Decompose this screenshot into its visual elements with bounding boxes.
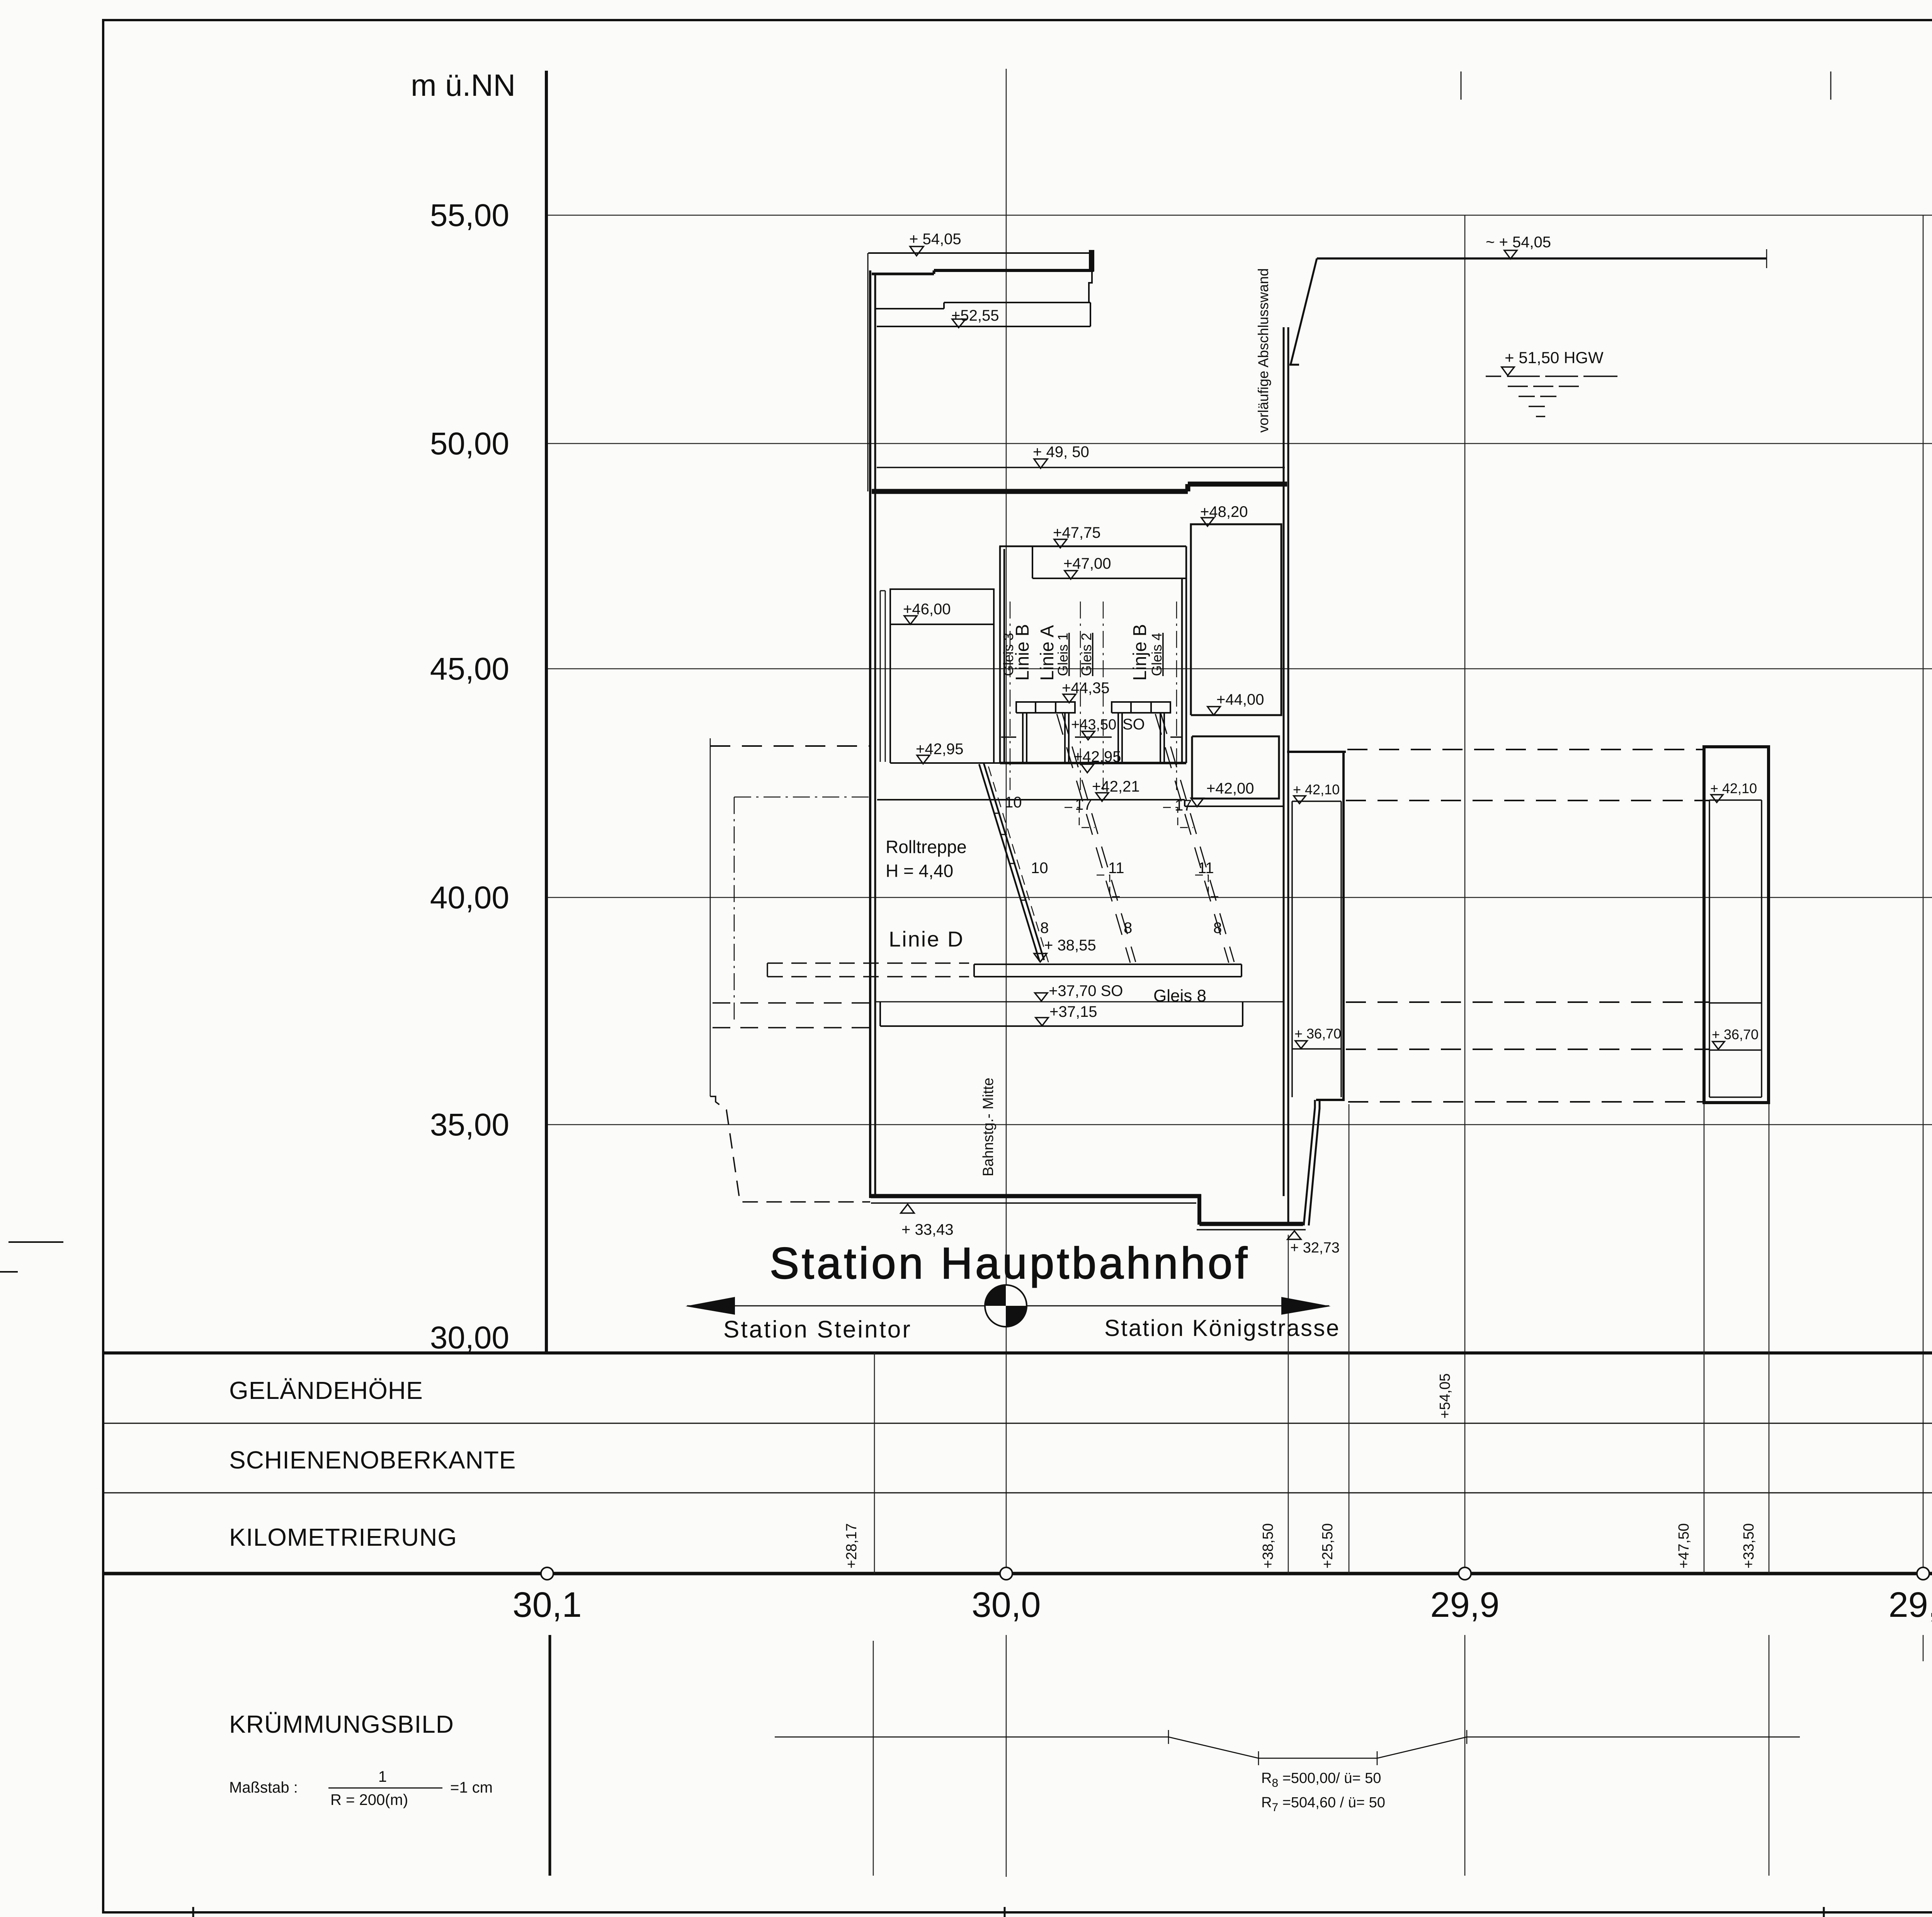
- svg-text:30,00: 30,00: [430, 1320, 509, 1355]
- svg-text:10: 10: [1005, 794, 1022, 811]
- svg-text:+44,00: +44,00: [1216, 691, 1264, 708]
- svg-text:Gleis 2: Gleis 2: [1078, 633, 1094, 676]
- svg-text:+ 36,70: + 36,70: [1712, 1026, 1759, 1042]
- svg-text:+ 36,70: + 36,70: [1294, 1026, 1341, 1042]
- svg-text:+ 38,55: + 38,55: [1044, 937, 1096, 954]
- svg-text:35,00: 35,00: [430, 1107, 509, 1142]
- svg-text:Gleis 1: Gleis 1: [1055, 633, 1071, 676]
- svg-text:Linie B: Linie B: [1012, 624, 1033, 681]
- svg-text:+ 42,10: + 42,10: [1710, 780, 1757, 796]
- svg-text:Bahnstg.- Mitte: Bahnstg.- Mitte: [980, 1077, 997, 1176]
- svg-text:45,00: 45,00: [430, 651, 509, 687]
- svg-text:50,00: 50,00: [430, 426, 509, 461]
- svg-text:Station Hauptbahnhof: Station Hauptbahnhof: [770, 1239, 1250, 1288]
- svg-text:~ + 54,05: ~ + 54,05: [1486, 234, 1551, 251]
- svg-text:+ 49, 50: + 49, 50: [1033, 444, 1089, 461]
- svg-text:+54,05: +54,05: [1437, 1373, 1453, 1419]
- svg-text:Linie D: Linie D: [889, 927, 964, 951]
- svg-text:30,1: 30,1: [512, 1585, 582, 1625]
- svg-text:H = 4,40: H = 4,40: [886, 861, 953, 881]
- svg-text:40,00: 40,00: [430, 880, 509, 915]
- svg-text:KRÜMMUNGSBILD: KRÜMMUNGSBILD: [229, 1710, 454, 1738]
- svg-text:30,0: 30,0: [971, 1585, 1041, 1625]
- svg-text:+33,50: +33,50: [1741, 1523, 1757, 1569]
- svg-text:GELÄNDEHÖHE: GELÄNDEHÖHE: [229, 1377, 423, 1404]
- svg-text:+28,17: +28,17: [844, 1523, 860, 1569]
- svg-text:17: 17: [1075, 796, 1092, 813]
- svg-text:Station Königstrasse: Station Königstrasse: [1104, 1315, 1340, 1341]
- svg-text:29,9: 29,9: [1430, 1585, 1499, 1625]
- svg-text:Rolltreppe: Rolltreppe: [886, 837, 967, 857]
- svg-text:=1 cm: =1 cm: [450, 1779, 493, 1796]
- svg-text:Maßstab :: Maßstab :: [229, 1779, 298, 1796]
- svg-text:Linje B: Linje B: [1130, 624, 1150, 681]
- svg-text:55,00: 55,00: [430, 198, 509, 233]
- svg-text:+52,55: +52,55: [951, 307, 999, 324]
- svg-text:Gleis 8: Gleis 8: [1153, 986, 1206, 1005]
- svg-text:+42,95: +42,95: [1073, 748, 1121, 765]
- svg-text:+37,15: +37,15: [1049, 1003, 1097, 1020]
- svg-text:Station Steintor: Station Steintor: [723, 1316, 912, 1343]
- svg-text:+47,00: +47,00: [1063, 555, 1111, 572]
- svg-text:SCHIENENOBERKANTE: SCHIENENOBERKANTE: [229, 1446, 516, 1474]
- svg-text:+ 32,73: + 32,73: [1290, 1240, 1340, 1256]
- svg-text:m ü.NN: m ü.NN: [411, 68, 515, 102]
- svg-text:11: 11: [1108, 860, 1124, 877]
- svg-text:+ 54,05: + 54,05: [909, 231, 961, 248]
- svg-text:29,8: 29,8: [1888, 1585, 1932, 1625]
- svg-text:vorläufige Abschlusswand: vorläufige Abschlusswand: [1255, 268, 1271, 433]
- svg-text:+42,00: +42,00: [1206, 780, 1254, 797]
- svg-text:+43,50: +43,50: [1071, 717, 1116, 733]
- svg-text:SO: SO: [1122, 716, 1145, 733]
- svg-text:+ 42,10: + 42,10: [1293, 782, 1340, 797]
- svg-text:8: 8: [1124, 919, 1132, 936]
- svg-text:8: 8: [1213, 919, 1222, 936]
- svg-text:+ 33,43: + 33,43: [901, 1221, 954, 1238]
- svg-text:R = 200(m): R = 200(m): [330, 1791, 408, 1808]
- svg-text:8: 8: [1040, 919, 1049, 936]
- svg-text:11: 11: [1198, 860, 1214, 877]
- svg-text:+38,50: +38,50: [1260, 1523, 1276, 1569]
- svg-text:+25,50: +25,50: [1320, 1523, 1336, 1569]
- svg-text:10: 10: [1031, 860, 1048, 877]
- svg-text:1: 1: [378, 1768, 387, 1785]
- svg-text:+47,50: +47,50: [1676, 1523, 1692, 1569]
- svg-text:17: 17: [1175, 797, 1192, 814]
- svg-text:Gleis 4: Gleis 4: [1149, 633, 1165, 676]
- svg-text:+ 51,50 HGW: + 51,50 HGW: [1505, 348, 1604, 367]
- svg-text:+37,70 SO: +37,70 SO: [1049, 982, 1123, 999]
- svg-text:KILOMETRIERUNG: KILOMETRIERUNG: [229, 1523, 457, 1551]
